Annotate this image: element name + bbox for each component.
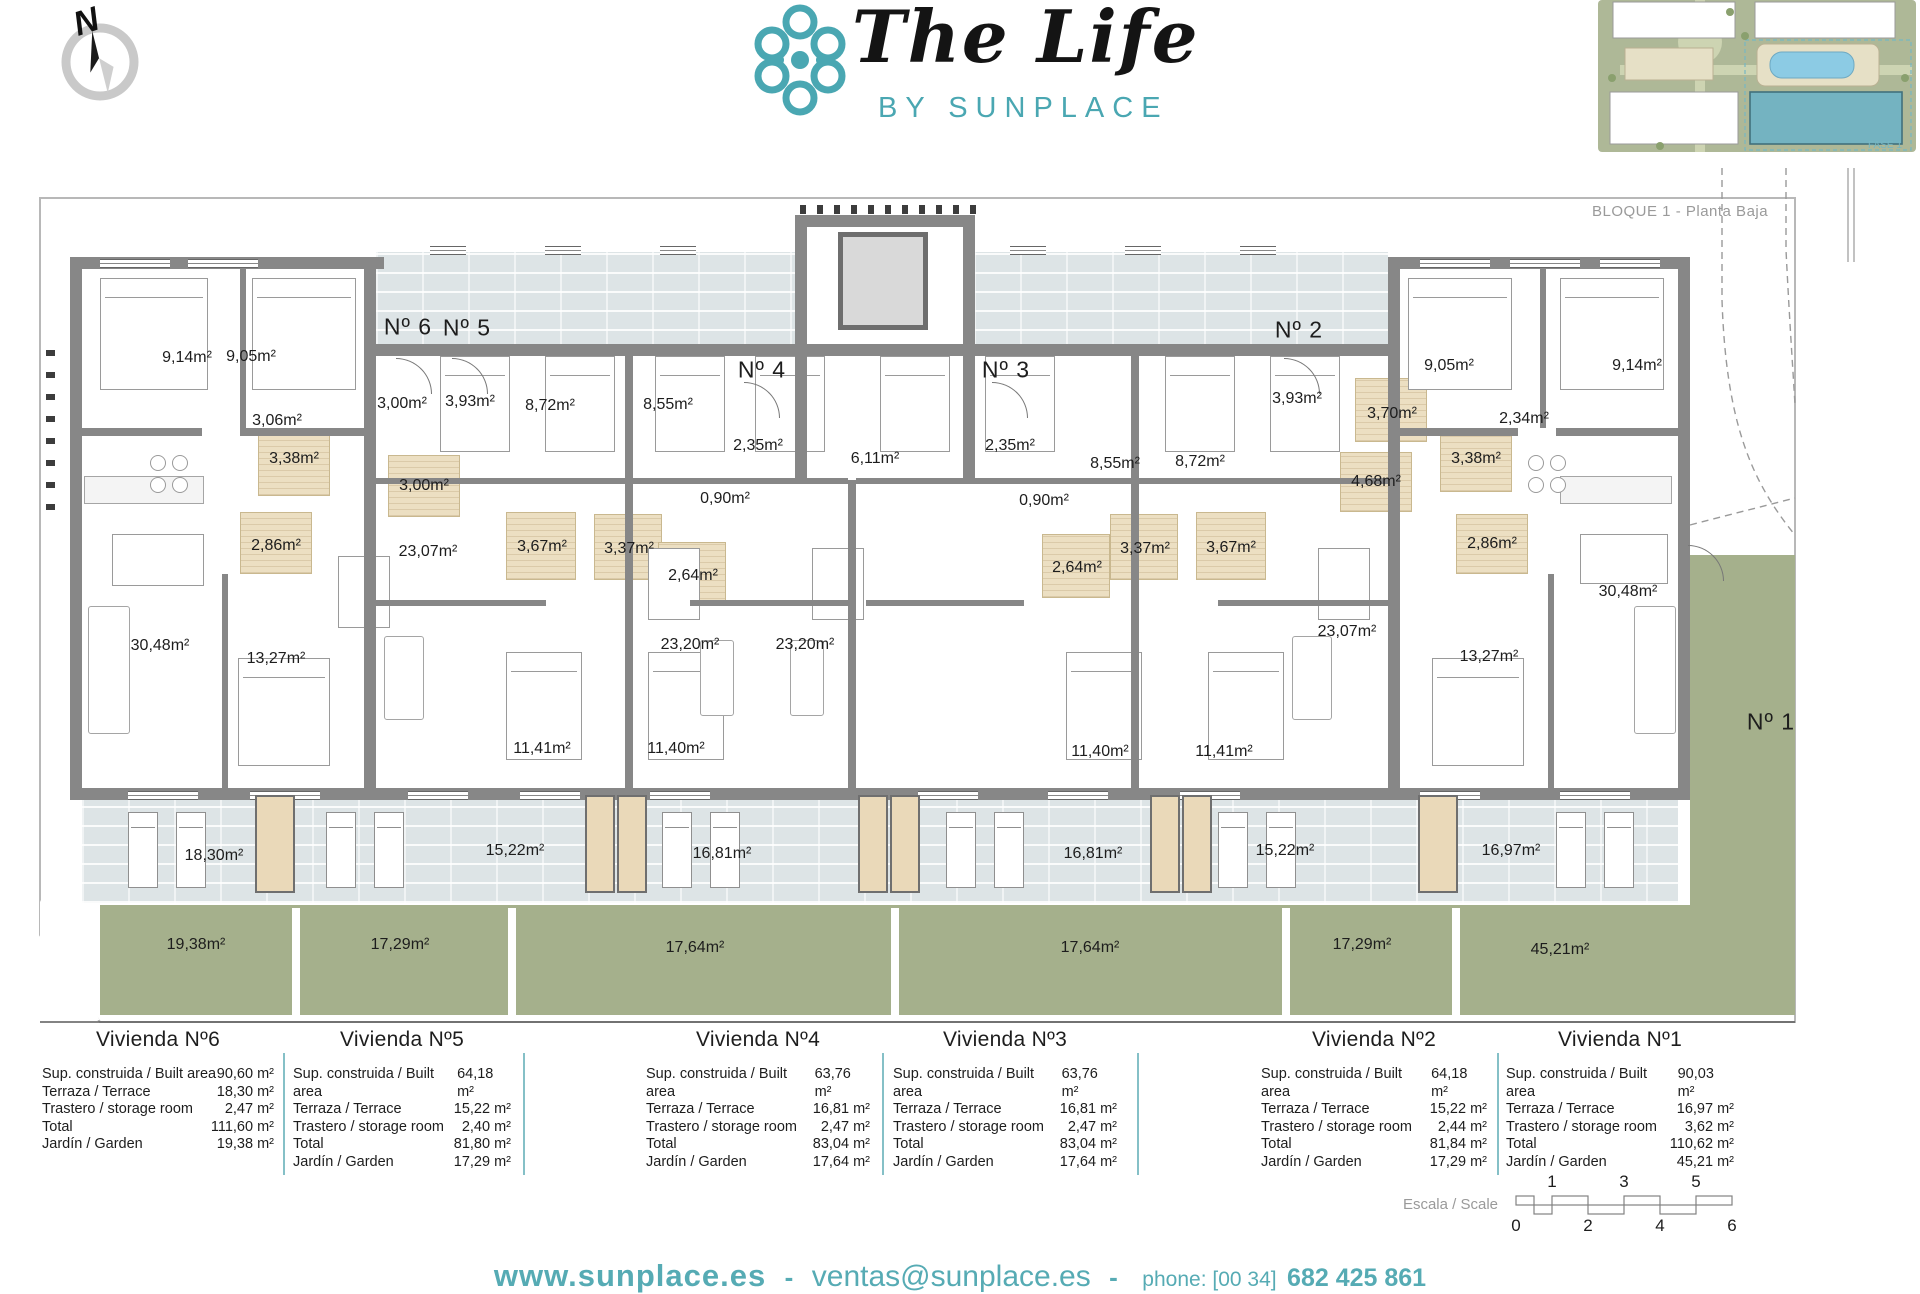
row-value: 2,47 m² — [821, 1119, 870, 1137]
terrace-area-label: 16,81m² — [1064, 845, 1123, 863]
scale-tick: 0 — [1511, 1216, 1520, 1236]
brand-logo-icon — [758, 8, 842, 112]
phase-label: FASE 1 — [1868, 140, 1902, 151]
wall — [866, 600, 1024, 606]
sun-lounger — [994, 812, 1024, 888]
window — [430, 246, 466, 255]
garden-divider — [292, 908, 300, 1015]
storage-room — [858, 795, 888, 893]
room-area-label: 13,27m² — [1460, 648, 1519, 666]
room-area-label: 3,38m² — [1451, 450, 1501, 468]
footer-separator: - — [785, 1262, 794, 1292]
room-area-label: 3,00m² — [399, 477, 449, 495]
row-value: 16,81 m² — [813, 1101, 870, 1119]
bed — [238, 658, 330, 766]
wall — [1398, 428, 1518, 436]
stool — [1528, 455, 1544, 471]
table-row: Jardín / Garden19,38 m² — [42, 1136, 274, 1154]
scale-tick: 1 — [1547, 1172, 1556, 1192]
row-value: 17,29 m² — [454, 1154, 511, 1172]
row-label: Terraza / Terrace — [42, 1084, 151, 1102]
table-divider — [882, 1053, 884, 1175]
row-value: 90,60 m² — [217, 1066, 274, 1084]
table-row: Terraza / Terrace16,81 m² — [893, 1101, 1117, 1119]
table-divider — [1137, 1053, 1139, 1175]
row-label: Terraza / Terrace — [293, 1101, 402, 1119]
window — [100, 259, 170, 268]
garden-area — [100, 905, 1795, 1015]
table-row: Sup. construida / Built area63,76 m² — [646, 1066, 870, 1101]
table-title: Vivienda Nº3 — [893, 1028, 1117, 1052]
table-row: Terraza / Terrace16,97 m² — [1506, 1101, 1734, 1119]
wall — [963, 215, 975, 480]
pergola-tick — [851, 205, 857, 214]
sun-lounger — [1556, 812, 1586, 888]
row-label: Sup. construida / Built area — [293, 1066, 457, 1101]
wall — [633, 478, 848, 484]
louvre-tick — [46, 416, 55, 422]
room-area-label: 3,37m² — [604, 540, 654, 558]
wall — [795, 215, 975, 227]
wall — [795, 215, 807, 480]
room-area-label: 2,86m² — [1467, 535, 1517, 553]
bed — [1432, 658, 1524, 766]
row-value: 2,44 m² — [1438, 1119, 1487, 1137]
scale-tick: 3 — [1619, 1172, 1628, 1192]
room-area-label: 3,93m² — [445, 393, 495, 411]
garden-divider — [1282, 908, 1290, 1015]
room-area-label: 2,35m² — [733, 437, 783, 455]
terrace-area-label: 15,22m² — [1256, 842, 1315, 860]
terrace-area-label: 16,81m² — [693, 845, 752, 863]
row-label: Total — [1506, 1136, 1537, 1154]
row-label: Terraza / Terrace — [1261, 1101, 1370, 1119]
table-title: Vivienda Nº1 — [1506, 1028, 1734, 1052]
mini-site-map: FASE 1 — [1598, 0, 1916, 152]
table-title: Vivienda Nº6 — [42, 1028, 274, 1052]
table-row: Trastero / storage room2,44 m² — [1261, 1119, 1487, 1137]
table-divider — [523, 1053, 525, 1175]
table-row: Trastero / storage room3,62 m² — [1506, 1119, 1734, 1137]
pergola-tick — [970, 205, 976, 214]
pergola-tick — [800, 205, 806, 214]
window — [520, 791, 580, 800]
row-value: 16,97 m² — [1677, 1101, 1734, 1119]
table-divider — [1497, 1053, 1499, 1175]
row-label: Total — [893, 1136, 924, 1154]
row-label: Total — [1261, 1136, 1292, 1154]
sofa — [384, 636, 424, 720]
sun-lounger — [662, 812, 692, 888]
footer-separator: - — [1109, 1262, 1118, 1292]
table-row: Sup. construida / Built area90,60 m² — [42, 1066, 274, 1084]
row-label: Jardín / Garden — [42, 1136, 143, 1154]
louvre-tick — [46, 394, 55, 400]
wall — [856, 478, 1131, 484]
unit-number-label: Nº 2 — [1275, 317, 1323, 344]
garden-area-label: 17,29m² — [1333, 936, 1392, 954]
unit-number-label: Nº 6 — [384, 314, 432, 341]
table-row: Jardín / Garden17,64 m² — [893, 1154, 1117, 1172]
room-area-label: 6,11m² — [851, 450, 900, 468]
sofa — [1634, 606, 1676, 734]
bed — [1165, 356, 1235, 452]
garden-divider — [891, 908, 899, 1015]
row-label: Trastero / storage room — [1506, 1119, 1657, 1137]
window — [1240, 246, 1276, 255]
footer-website[interactable]: www.sunplace.es — [494, 1258, 766, 1293]
garden-area-label: 19,38m² — [167, 936, 226, 954]
dining-table — [812, 548, 864, 620]
dining-table — [112, 534, 204, 586]
unit-number-label: Nº 1 — [1747, 709, 1795, 736]
wall — [625, 350, 633, 788]
room-area-label: 8,72m² — [1175, 453, 1225, 471]
row-label: Jardín / Garden — [1261, 1154, 1362, 1172]
dining-table — [1580, 534, 1668, 584]
footer-email[interactable]: ventas@sunplace.es — [812, 1260, 1091, 1293]
table-title: Vivienda Nº4 — [646, 1028, 870, 1052]
window — [188, 259, 258, 268]
room-area-label: 3,67m² — [517, 538, 567, 556]
stool — [1550, 455, 1566, 471]
row-label: Total — [293, 1136, 324, 1154]
wall — [364, 257, 376, 800]
scale-tick: 6 — [1727, 1216, 1736, 1236]
louvre-tick — [46, 372, 55, 378]
storage-room — [1418, 795, 1458, 893]
table-row: Terraza / Terrace15,22 m² — [293, 1101, 511, 1119]
unit-number-label: Nº 4 — [738, 357, 786, 384]
row-value: 16,81 m² — [1060, 1101, 1117, 1119]
table-row: Jardín / Garden45,21 m² — [1506, 1154, 1734, 1172]
window — [545, 246, 581, 255]
table-row: Terraza / Terrace16,81 m² — [646, 1101, 870, 1119]
window — [128, 791, 198, 800]
row-value: 19,38 m² — [217, 1136, 274, 1154]
table-title: Vivienda Nº2 — [1261, 1028, 1487, 1052]
room-area-label: 8,72m² — [525, 397, 575, 415]
room-area-label: 23,20m² — [661, 636, 720, 654]
row-label: Trastero / storage room — [646, 1119, 797, 1137]
footer-phone-number[interactable]: 682 425 861 — [1287, 1264, 1426, 1292]
footer-contact: www.sunplace.es - ventas@sunplace.es - p… — [0, 1258, 1920, 1294]
table-row: Terraza / Terrace18,30 m² — [42, 1084, 274, 1102]
row-value: 18,30 m² — [217, 1084, 274, 1102]
room-area-label: 8,55m² — [643, 396, 693, 414]
vivienda-table: Vivienda Nº5Sup. construida / Built area… — [293, 1028, 511, 1171]
row-label: Sup. construida / Built area — [42, 1066, 216, 1084]
bed — [100, 278, 208, 390]
wall — [372, 344, 1400, 356]
window — [1510, 259, 1580, 268]
garden-area-label: 17,29m² — [371, 936, 430, 954]
table-row: Jardín / Garden17,29 m² — [1261, 1154, 1487, 1172]
wall — [690, 600, 848, 606]
stool — [150, 455, 166, 471]
row-label: Jardín / Garden — [1506, 1154, 1607, 1172]
window — [918, 791, 978, 800]
table-row: Total83,04 m² — [893, 1136, 1117, 1154]
room-area-label: 2,64m² — [668, 567, 718, 585]
row-value: 83,04 m² — [1060, 1136, 1117, 1154]
scale-label: Escala / Scale — [1380, 1196, 1498, 1213]
room-area-label: 3,70m² — [1367, 405, 1417, 423]
row-label: Jardín / Garden — [893, 1154, 994, 1172]
table-row: Total110,62 m² — [1506, 1136, 1734, 1154]
room-area-label: 3,67m² — [1206, 539, 1256, 557]
storage-room — [1182, 795, 1212, 893]
vivienda-table: Vivienda Nº6Sup. construida / Built area… — [42, 1028, 274, 1154]
room-area-label: 0,90m² — [700, 490, 750, 508]
row-value: 111,60 m² — [211, 1119, 274, 1137]
unit-number-label: Nº 5 — [443, 315, 491, 342]
pergola-tick — [953, 205, 959, 214]
room-area-label: 9,14m² — [1612, 357, 1662, 375]
dining-table — [1318, 548, 1370, 620]
sofa — [1292, 636, 1332, 720]
storage-room — [1150, 795, 1180, 893]
room-area-label: 3,00m² — [377, 395, 427, 413]
room-area-label: 9,05m² — [1424, 357, 1474, 375]
garden-area-label: 45,21m² — [1531, 941, 1590, 959]
storage-room — [585, 795, 615, 893]
stool — [1528, 477, 1544, 493]
window — [1125, 246, 1161, 255]
row-value: 3,62 m² — [1685, 1119, 1734, 1137]
table-row: Total111,60 m² — [42, 1119, 274, 1137]
row-value: 15,22 m² — [1430, 1101, 1487, 1119]
table-row: Sup. construida / Built area90,03 m² — [1506, 1066, 1734, 1101]
garden-area — [1690, 555, 1795, 1015]
louvre-tick — [46, 482, 55, 488]
window — [660, 246, 696, 255]
wall — [82, 428, 202, 436]
wall — [376, 600, 546, 606]
wall — [70, 257, 82, 800]
room-area-label: 3,06m² — [252, 412, 302, 430]
table-row: Total83,04 m² — [646, 1136, 870, 1154]
wall — [1556, 428, 1690, 436]
room-area-label: 9,05m² — [226, 348, 276, 366]
stool — [150, 477, 166, 493]
window — [408, 791, 468, 800]
garden-divider — [508, 908, 516, 1015]
louvre-tick — [46, 504, 55, 510]
room-area-label: 11,41m² — [513, 740, 571, 758]
bed — [252, 278, 356, 390]
stool — [172, 477, 188, 493]
room-area-label: 2,64m² — [1052, 559, 1102, 577]
room-area-label: 2,35m² — [985, 437, 1035, 455]
brand-subtitle: BY SUNPLACE — [878, 92, 1169, 125]
row-value: 110,62 m² — [1670, 1136, 1734, 1154]
elevator-shaft — [838, 232, 928, 330]
sun-lounger — [326, 812, 356, 888]
room-area-label: 3,38m² — [269, 450, 319, 468]
sun-lounger — [374, 812, 404, 888]
room-area-label: 23,20m² — [776, 636, 835, 654]
wall — [1678, 257, 1690, 800]
louvre-tick — [46, 438, 55, 444]
bed — [880, 356, 950, 452]
row-value: 17,29 m² — [1430, 1154, 1487, 1172]
room-area-label: 11,40m² — [1071, 743, 1129, 761]
compass-icon: N — [66, 0, 134, 96]
table-row: Trastero / storage room2,47 m² — [646, 1119, 870, 1137]
window — [1600, 259, 1660, 268]
room-area-label: 9,14m² — [162, 349, 212, 367]
table-row: Total81,84 m² — [1261, 1136, 1487, 1154]
wall — [1218, 600, 1388, 606]
row-label: Trastero / storage room — [1261, 1119, 1412, 1137]
table-row: Sup. construida / Built area64,18 m² — [293, 1066, 511, 1101]
room-area-label: 11,40m² — [647, 740, 705, 758]
row-label: Terraza / Terrace — [1506, 1101, 1615, 1119]
vivienda-table: Vivienda Nº4Sup. construida / Built area… — [646, 1028, 870, 1171]
room-area-label: 2,86m² — [251, 537, 301, 555]
row-label: Sup. construida / Built area — [1506, 1066, 1678, 1101]
garden-area-label: 17,64m² — [1061, 939, 1120, 957]
wall — [222, 574, 228, 788]
table-row: Trastero / storage room2,40 m² — [293, 1119, 511, 1137]
row-value: 45,21 m² — [1677, 1154, 1734, 1172]
room-area-label: 4,68m² — [1351, 473, 1401, 491]
row-value: 81,80 m² — [454, 1136, 511, 1154]
scale-tick: 4 — [1655, 1216, 1664, 1236]
row-label: Terraza / Terrace — [646, 1101, 755, 1119]
room-area-label: 8,55m² — [1090, 455, 1140, 473]
row-value: 90,03 m² — [1678, 1066, 1734, 1101]
table-divider — [283, 1053, 285, 1175]
vivienda-table: Vivienda Nº3Sup. construida / Built area… — [893, 1028, 1117, 1171]
row-value: 17,64 m² — [813, 1154, 870, 1172]
table-row: Trastero / storage room2,47 m² — [42, 1101, 274, 1119]
vivienda-table: Vivienda Nº1Sup. construida / Built area… — [1506, 1028, 1734, 1171]
row-label: Sup. construida / Built area — [1261, 1066, 1431, 1101]
kitchen-counter — [1560, 476, 1672, 504]
pergola-tick — [817, 205, 823, 214]
terrace-area-label: 16,97m² — [1482, 842, 1541, 860]
sun-lounger — [1604, 812, 1634, 888]
row-label: Terraza / Terrace — [893, 1101, 1002, 1119]
table-row: Trastero / storage room2,47 m² — [893, 1119, 1117, 1137]
garden-divider — [1452, 908, 1460, 1015]
projection-lines — [1848, 168, 1854, 262]
sun-lounger — [128, 812, 158, 888]
unit-number-label: Nº 3 — [982, 357, 1030, 384]
wall — [1540, 257, 1546, 428]
pergola-tick — [868, 205, 874, 214]
table-row: Jardín / Garden17,29 m² — [293, 1154, 511, 1172]
row-label: Sup. construida / Built area — [646, 1066, 815, 1101]
sun-lounger — [946, 812, 976, 888]
table-row: Sup. construida / Built area63,76 m² — [893, 1066, 1117, 1101]
table-row: Total81,80 m² — [293, 1136, 511, 1154]
room-area-label: 23,07m² — [1318, 623, 1377, 641]
room-area-label: 23,07m² — [399, 543, 458, 561]
stool — [1550, 477, 1566, 493]
scale-tick: 5 — [1691, 1172, 1700, 1192]
row-value: 81,84 m² — [1430, 1136, 1487, 1154]
table-row: Sup. construida / Built area64,18 m² — [1261, 1066, 1487, 1101]
row-label: Trastero / storage room — [293, 1119, 444, 1137]
window — [1420, 259, 1490, 268]
garden-area-label: 17,64m² — [666, 939, 725, 957]
table-row: Terraza / Terrace15,22 m² — [1261, 1101, 1487, 1119]
row-value: 17,64 m² — [1060, 1154, 1117, 1172]
louvre-tick — [46, 460, 55, 466]
storage-room — [617, 795, 647, 893]
room-area-label: 2,34m² — [1499, 410, 1549, 428]
window — [650, 791, 710, 800]
row-label: Total — [42, 1119, 73, 1137]
row-value: 2,40 m² — [462, 1119, 511, 1137]
pergola-tick — [885, 205, 891, 214]
pergola-tick — [919, 205, 925, 214]
dashed-road-curves — [1690, 168, 1795, 535]
scale-tick: 2 — [1583, 1216, 1592, 1236]
room-area-label: 30,48m² — [1599, 583, 1658, 601]
brand-title: The Life — [852, 0, 1200, 79]
wall — [1548, 574, 1554, 788]
vivienda-table: Vivienda Nº2Sup. construida / Built area… — [1261, 1028, 1487, 1171]
window — [1560, 791, 1630, 800]
row-label: Jardín / Garden — [646, 1154, 747, 1172]
table-title: Vivienda Nº5 — [293, 1028, 511, 1052]
louvre-tick — [46, 350, 55, 356]
floor-plan-page: FASE 1 N The Life BY SUNPLACE BLOQUE 1 -… — [0, 0, 1920, 1280]
row-value: 63,76 m² — [815, 1066, 870, 1101]
storage-room — [890, 795, 920, 893]
wall — [1131, 350, 1139, 788]
stool — [172, 455, 188, 471]
row-value: 64,18 m² — [457, 1066, 511, 1101]
pergola-tick — [834, 205, 840, 214]
window — [1048, 791, 1108, 800]
row-label: Trastero / storage room — [893, 1119, 1044, 1137]
room-area-label: 3,37m² — [1120, 540, 1170, 558]
row-value: 63,76 m² — [1062, 1066, 1117, 1101]
row-value: 15,22 m² — [454, 1101, 511, 1119]
room-area-label: 13,27m² — [247, 650, 306, 668]
window — [1010, 246, 1046, 255]
row-value: 2,47 m² — [1068, 1119, 1117, 1137]
terrace-area-label: 15,22m² — [486, 842, 545, 860]
row-value: 64,18 m² — [1431, 1066, 1487, 1101]
sofa — [88, 606, 130, 734]
row-value: 83,04 m² — [813, 1136, 870, 1154]
row-value: 2,47 m² — [225, 1101, 274, 1119]
wall — [240, 257, 246, 428]
row-label: Trastero / storage room — [42, 1101, 193, 1119]
wall — [1388, 257, 1400, 800]
room-area-label: 30,48m² — [131, 637, 190, 655]
table-row: Jardín / Garden17,64 m² — [646, 1154, 870, 1172]
room-area-label: 11,41m² — [1195, 743, 1253, 761]
room-area-label: 3,93m² — [1272, 390, 1322, 408]
sun-lounger — [1218, 812, 1248, 888]
row-label: Jardín / Garden — [293, 1154, 394, 1172]
pergola-tick — [936, 205, 942, 214]
pergola-tick — [902, 205, 908, 214]
room-area-label: 0,90m² — [1019, 492, 1069, 510]
row-label: Total — [646, 1136, 677, 1154]
terrace-area-label: 18,30m² — [185, 847, 244, 865]
block-caption: BLOQUE 1 - Planta Baja — [1592, 203, 1768, 220]
wall — [848, 480, 856, 788]
row-label: Sup. construida / Built area — [893, 1066, 1062, 1101]
